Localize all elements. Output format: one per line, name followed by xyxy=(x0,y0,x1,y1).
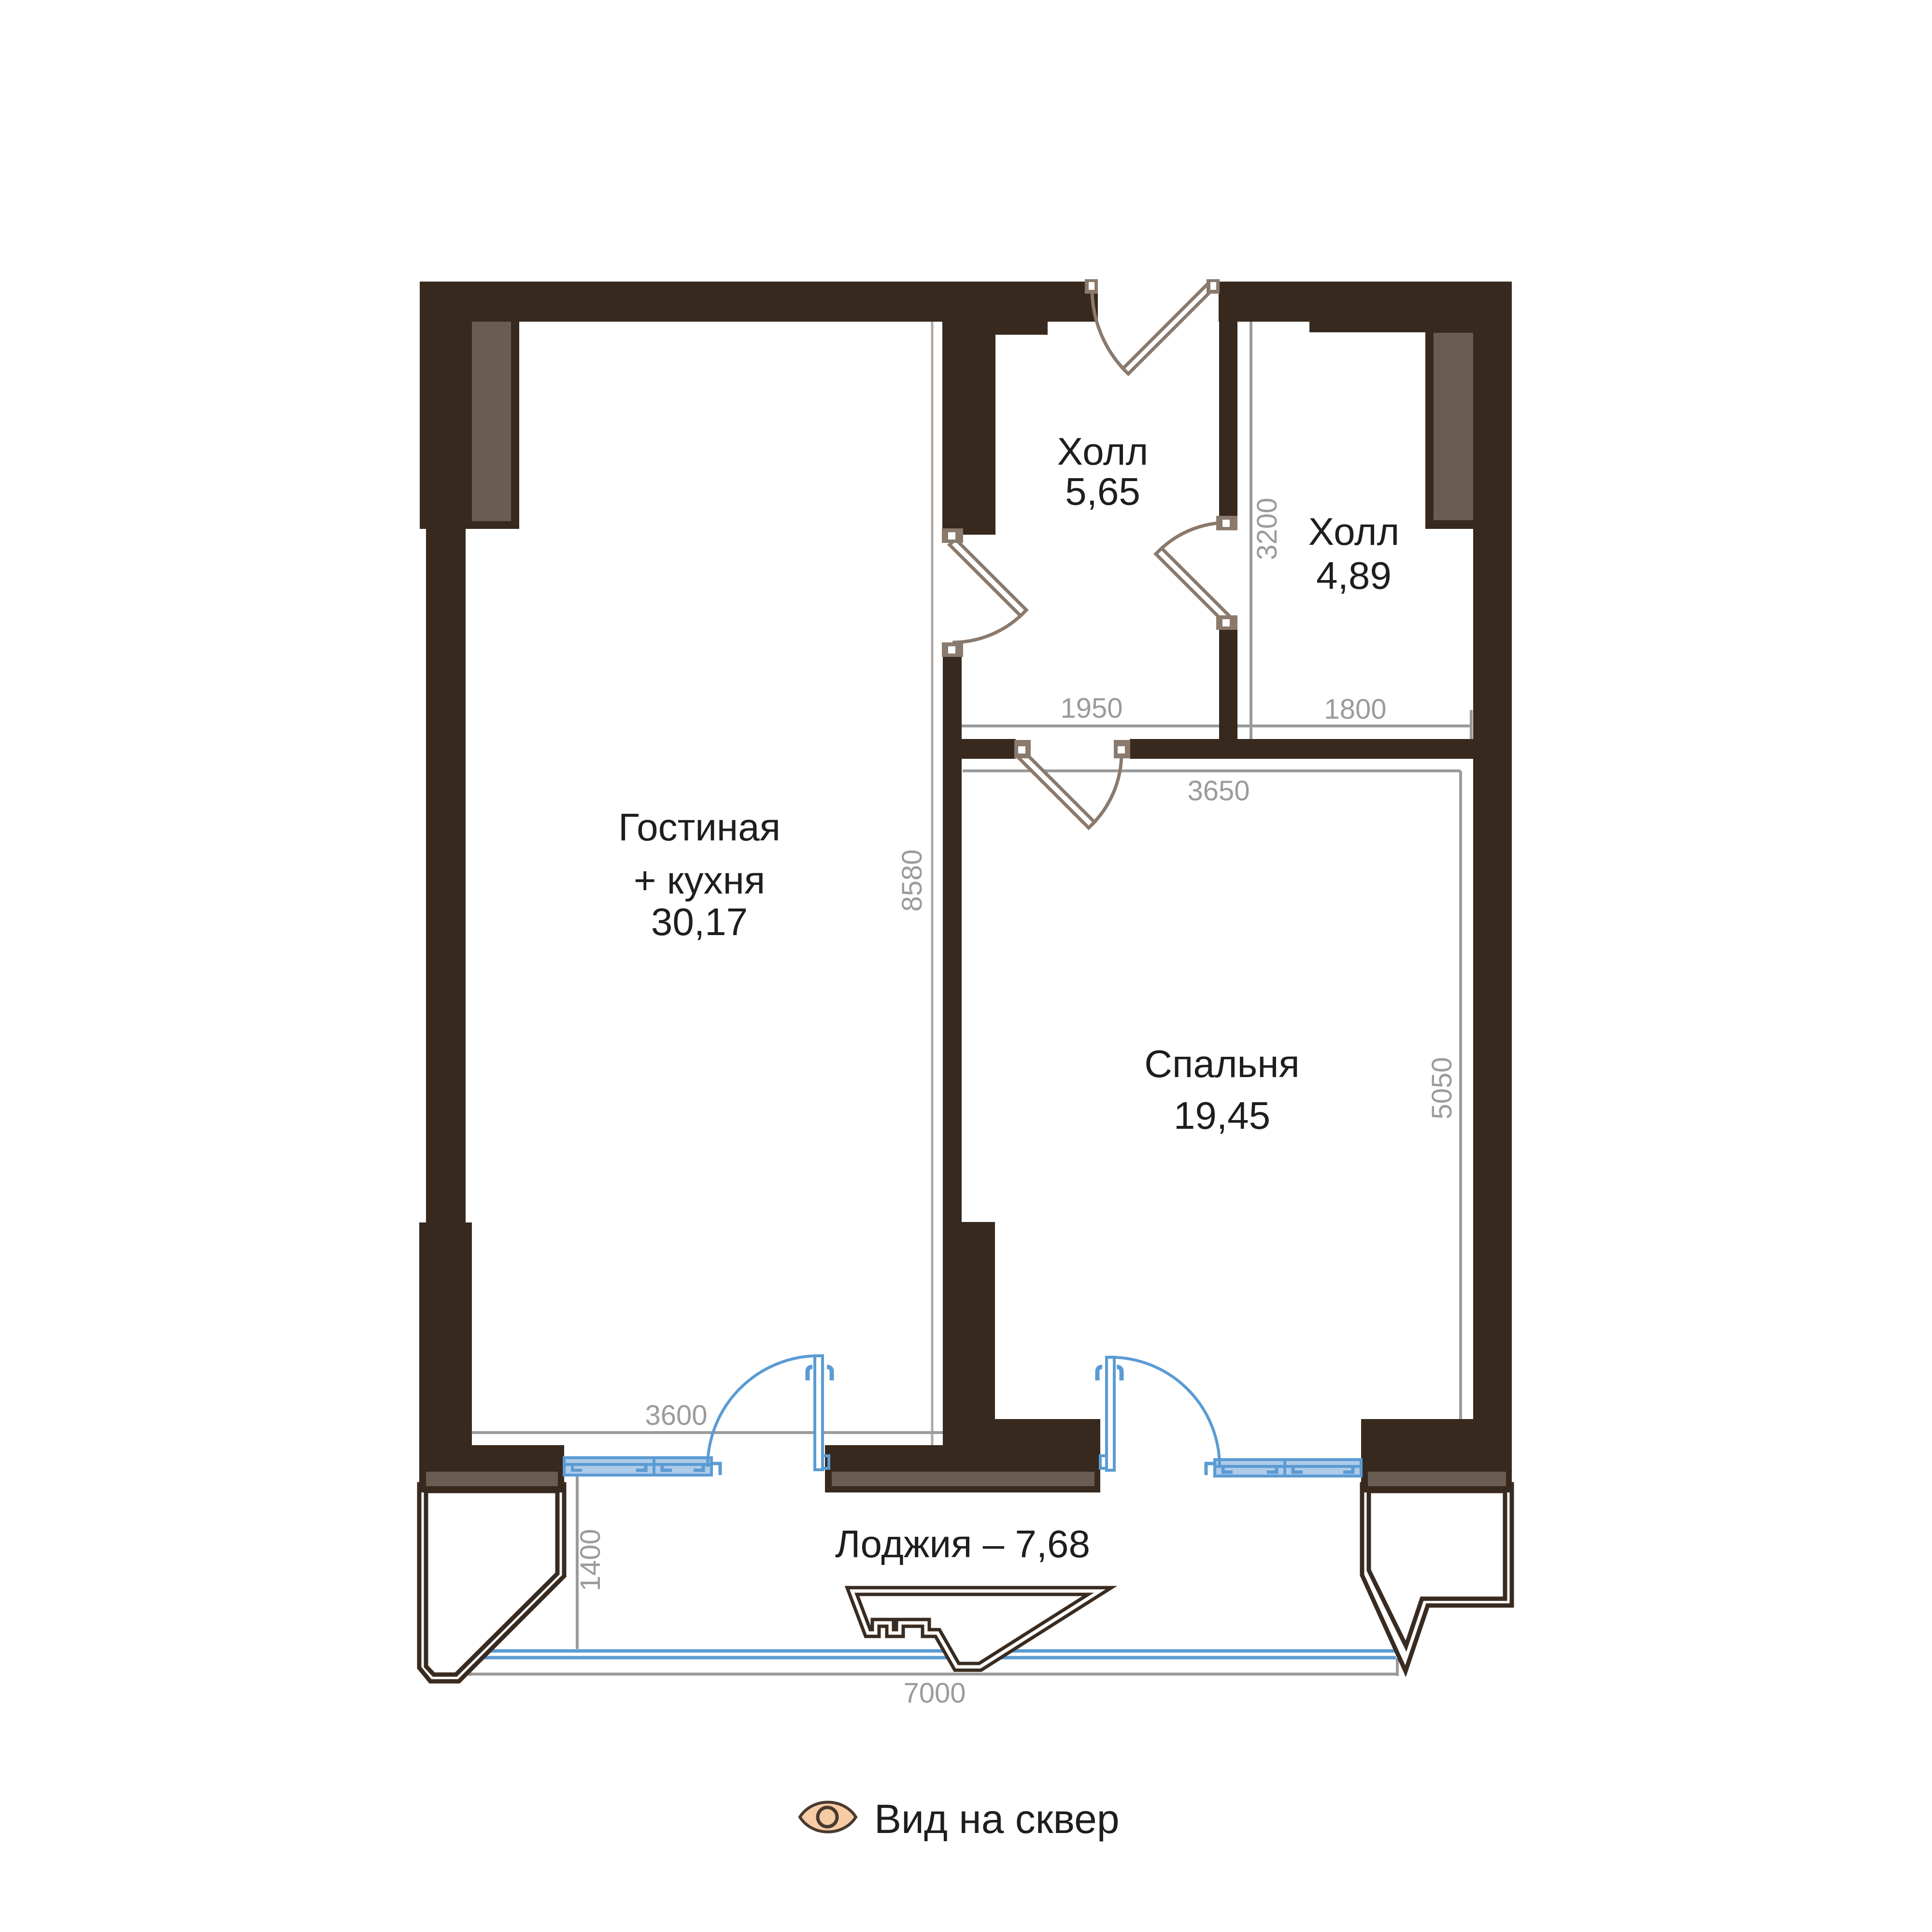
svg-text:Лоджия – 7,68: Лоджия – 7,68 xyxy=(835,1522,1090,1565)
svg-text:Вид на сквер: Вид на сквер xyxy=(874,1796,1120,1842)
svg-text:30,17: 30,17 xyxy=(651,900,748,943)
svg-text:7000: 7000 xyxy=(903,1677,966,1709)
svg-text:Холл: Холл xyxy=(1308,510,1400,553)
svg-text:Холл: Холл xyxy=(1057,430,1149,473)
svg-text:3600: 3600 xyxy=(645,1400,707,1431)
svg-text:8580: 8580 xyxy=(896,849,928,911)
svg-text:1800: 1800 xyxy=(1324,694,1386,725)
svg-text:3650: 3650 xyxy=(1187,775,1250,807)
svg-text:+ кухня: + кухня xyxy=(634,859,765,902)
svg-text:4,89: 4,89 xyxy=(1316,554,1392,597)
svg-text:5050: 5050 xyxy=(1426,1057,1458,1119)
svg-text:1950: 1950 xyxy=(1060,693,1122,724)
svg-text:Гостиная: Гостиная xyxy=(618,806,781,849)
svg-text:5,65: 5,65 xyxy=(1065,470,1140,513)
svg-text:3200: 3200 xyxy=(1251,497,1283,560)
svg-text:Спальня: Спальня xyxy=(1144,1042,1299,1085)
svg-text:19,45: 19,45 xyxy=(1174,1094,1270,1137)
svg-text:1400: 1400 xyxy=(575,1529,606,1591)
